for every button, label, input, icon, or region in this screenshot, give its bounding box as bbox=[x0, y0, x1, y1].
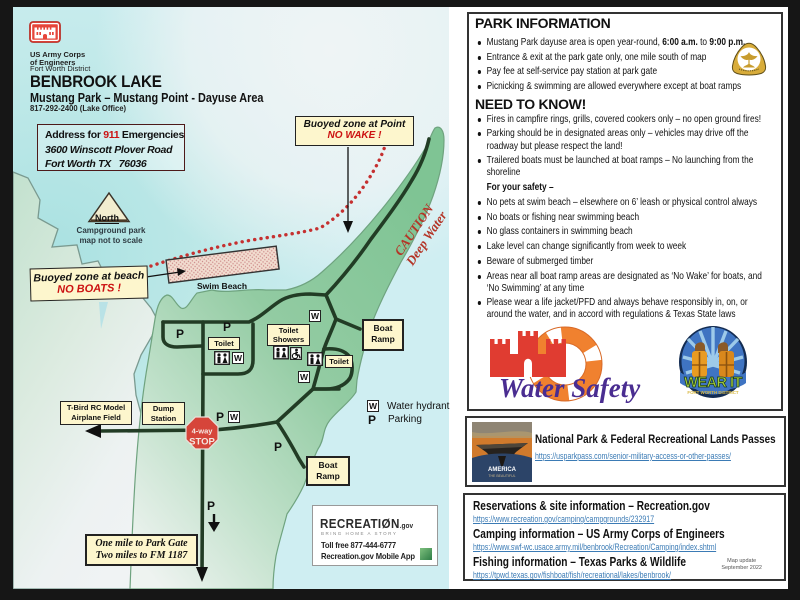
svg-text:Water Safety: Water Safety bbox=[499, 373, 641, 403]
svg-text:AMERICA: AMERICA bbox=[488, 467, 517, 473]
svg-text:STOP: STOP bbox=[189, 437, 215, 448]
svg-text:WEAR IT: WEAR IT bbox=[684, 375, 742, 391]
svg-text:THE BEAUTIFUL: THE BEAUTIFUL bbox=[488, 474, 515, 478]
svg-text:FORT WORTH DISTRICT: FORT WORTH DISTRICT bbox=[687, 390, 739, 395]
svg-text:4-way: 4-way bbox=[192, 427, 214, 436]
